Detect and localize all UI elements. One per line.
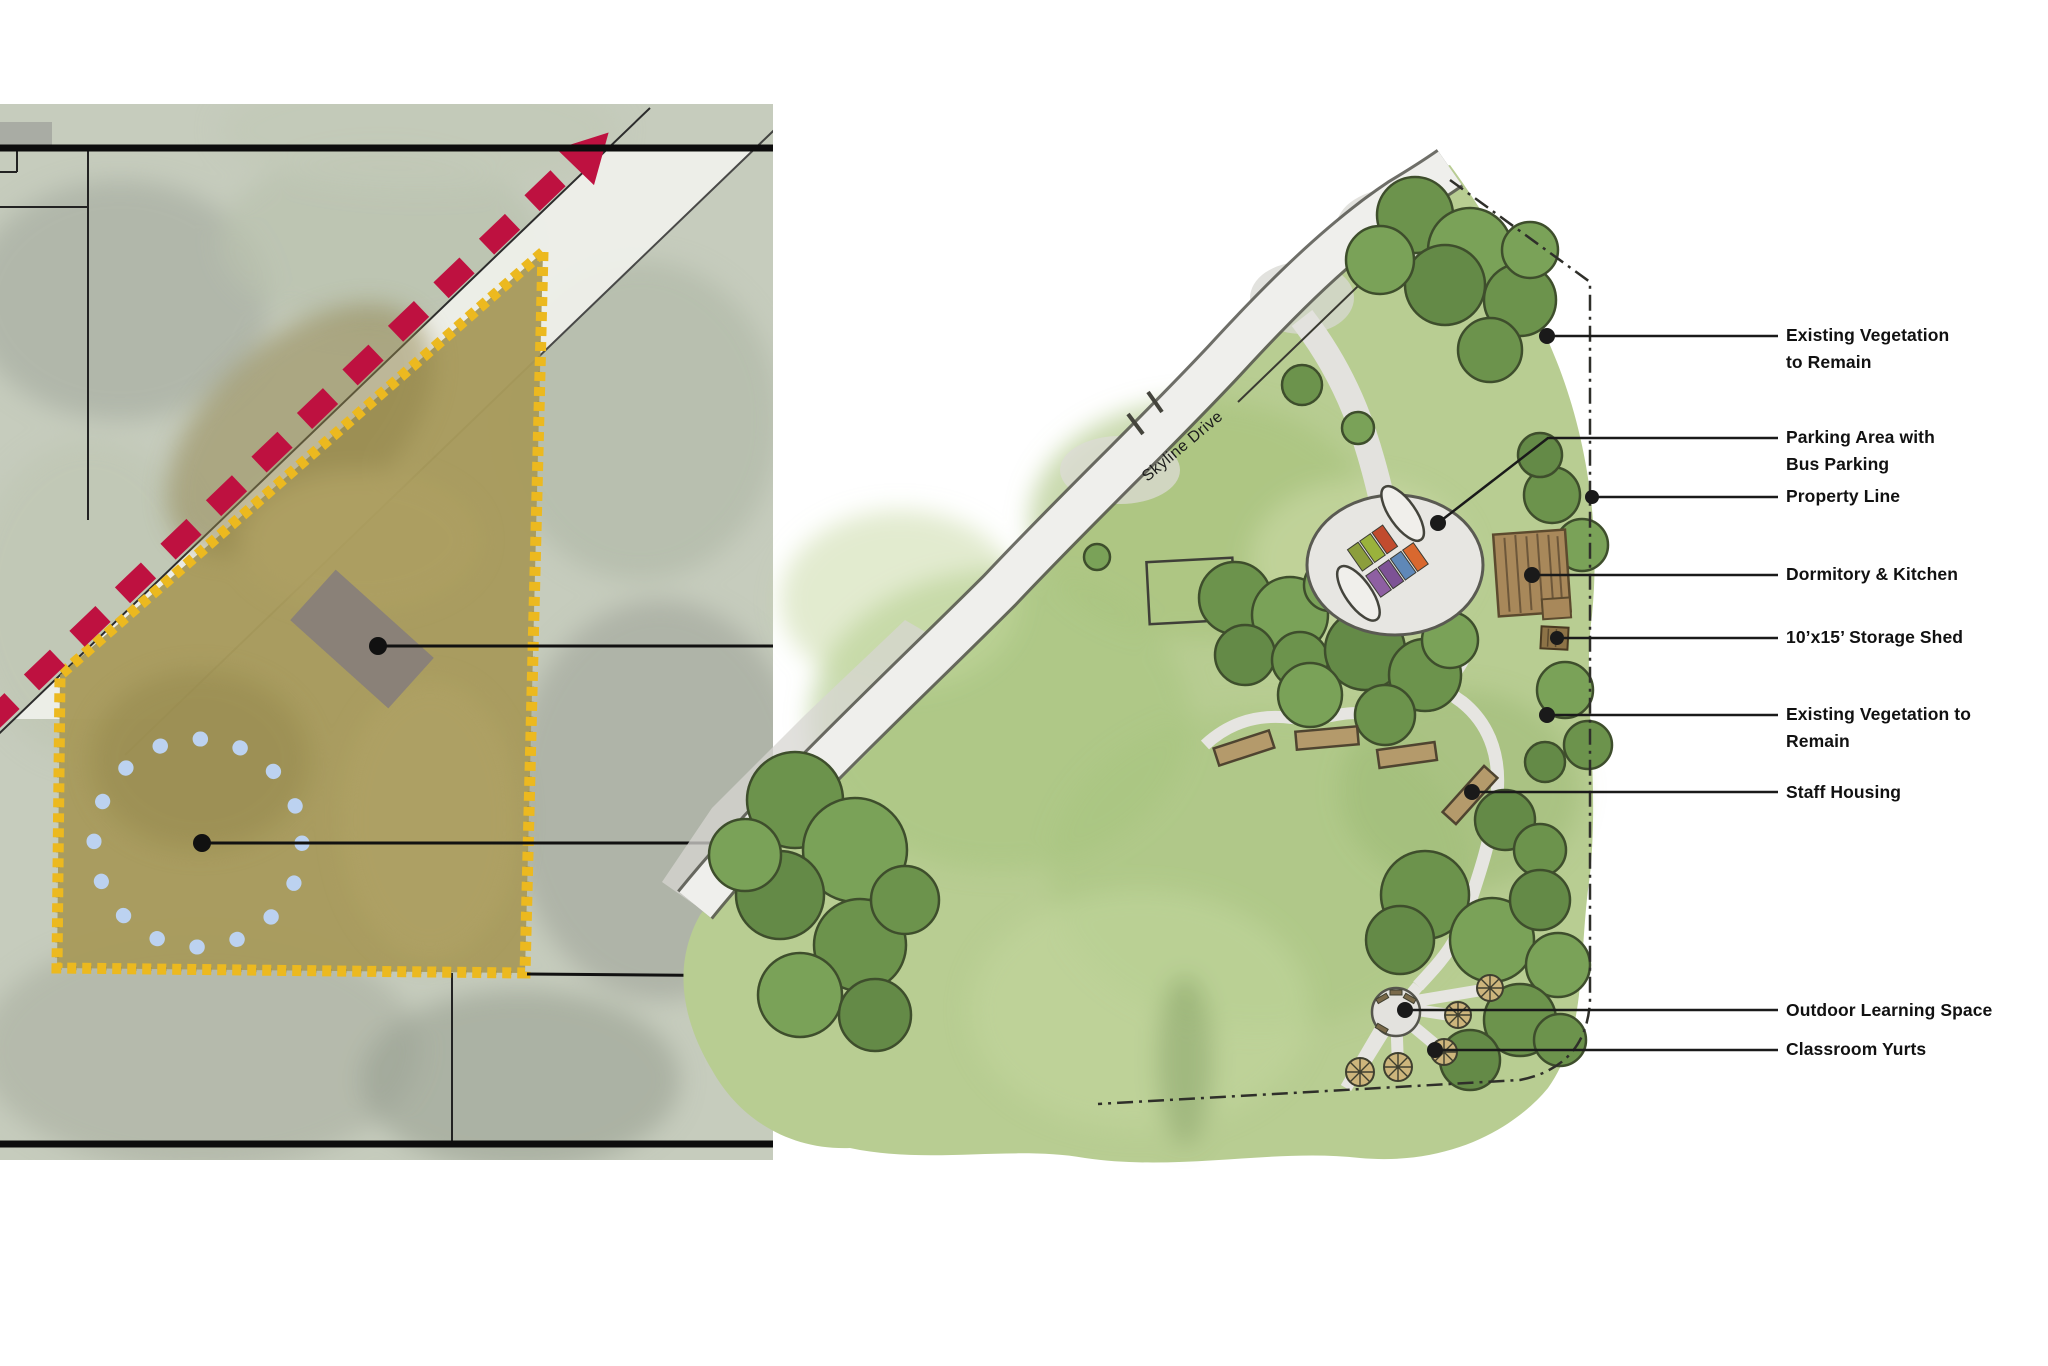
label-classroom-yurts: Classroom Yurts — [1786, 1036, 2048, 1063]
label-dormitory-kitchen: Dormitory & Kitchen — [1786, 561, 2048, 588]
callout-dot-staff-housing — [1464, 784, 1480, 800]
label-existing-vegetation-mid: Existing Vegetation to Remain — [1786, 701, 2048, 755]
yurt — [1477, 975, 1503, 1001]
tree-single — [1342, 412, 1374, 444]
site-plan-illustration — [662, 165, 1612, 1163]
callout-dot-storage-shed — [1550, 631, 1564, 645]
label-existing-vegetation-top: Existing Vegetation to Remain — [1786, 322, 2048, 376]
callout-dot-existing-vegetation-top — [1539, 328, 1555, 344]
label-parking-area: Parking Area with Bus Parking — [1786, 424, 2048, 478]
callout-dot-classroom-yurts — [1427, 1042, 1443, 1058]
frame-notch — [0, 122, 52, 148]
yurt — [1445, 1002, 1471, 1028]
illustration — [0, 0, 2048, 1366]
label-staff-housing: Staff Housing — [1786, 779, 2048, 806]
page: { "site_plan": { "road_label": "Skyline … — [0, 0, 2048, 1366]
yurt — [1346, 1058, 1374, 1086]
callout-dot-property-line — [1585, 490, 1599, 504]
label-storage-shed: 10’x15’ Storage Shed — [1786, 624, 2048, 651]
callout-dot-building-left — [369, 637, 387, 655]
tree-single — [1084, 544, 1110, 570]
callout-dot-circle-left — [193, 834, 211, 852]
tree-single — [1282, 365, 1322, 405]
label-outdoor-learning-space: Outdoor Learning Space — [1786, 997, 2048, 1024]
staff-cabin — [1295, 726, 1358, 749]
label-property-line: Property Line — [1786, 483, 2048, 510]
callout-dot-existing-vegetation-mid — [1539, 707, 1555, 723]
learning-plaza — [1372, 988, 1420, 1036]
yurt — [1384, 1053, 1412, 1081]
callout-dot-dormitory-kitchen — [1524, 567, 1540, 583]
callout-dot-outdoor-learning-space — [1397, 1002, 1413, 1018]
callout-dot-parking-area — [1430, 515, 1446, 531]
